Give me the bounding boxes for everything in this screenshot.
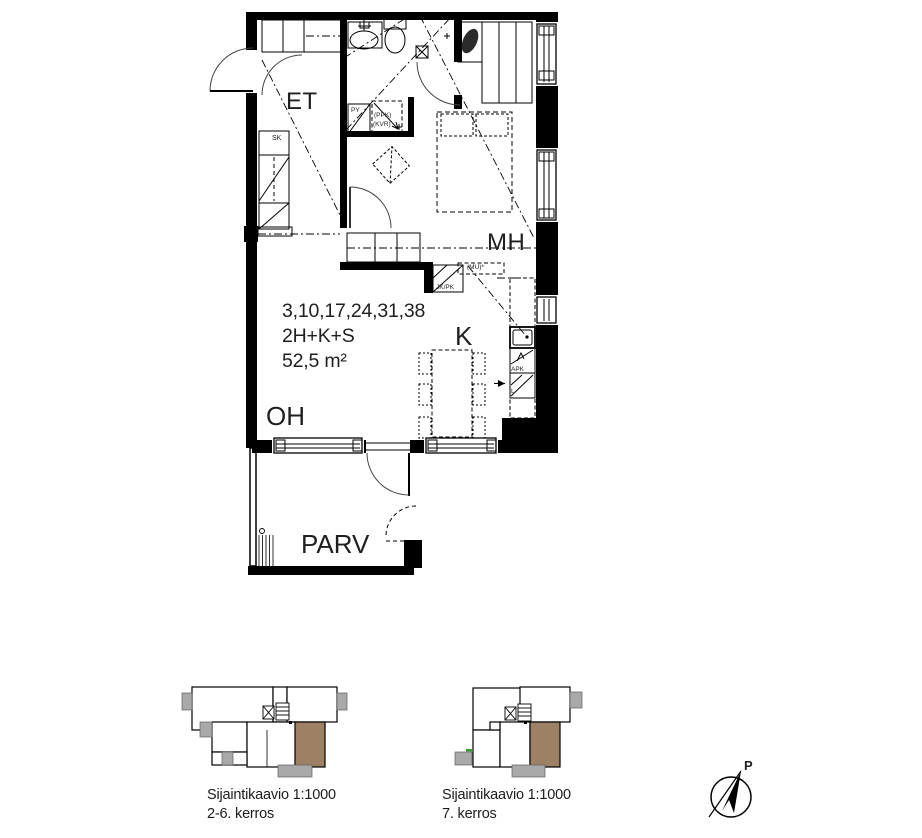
location-diagram-floors-2-6 [182,687,347,777]
diagram-2-floors: 7. kerros [442,805,571,824]
fixture-label-jkpk: JK/PK [436,284,454,291]
green-marker [466,749,472,752]
vent-lines [258,14,536,336]
fixture-label-mu: (MU)* [467,264,484,271]
room-label-hall: ET [286,88,318,116]
room-label-balcony: PARV [301,529,369,560]
chair [473,417,485,438]
north-label: P [744,758,753,773]
apartment-area: 52,5 m² [282,349,425,374]
fixture-label-l: L [511,388,515,395]
apartment-info: 3,10,17,24,31,38 2H+K+S 52,5 m² [282,299,425,374]
pillow [476,114,508,136]
diagram-2-title: Sijaintikaavio 1:1000 [442,786,571,805]
room-label-kitchen: K [455,321,472,352]
highlighted-apartment [295,722,325,767]
hall-closets [258,20,342,236]
fixture-label-kvr: (KVR) [373,121,391,128]
diagram-1-floors: 2-6. kerros [207,805,336,824]
windows-bottom-wall [272,436,498,455]
diagram-1-title: Sijaintikaavio 1:1000 [207,786,336,805]
apartment-numbers: 3,10,17,24,31,38 [282,299,425,324]
floorplan-page: ET MH K OH PARV 3,10,17,24,31,38 2H+K+S … [0,0,922,838]
dining-table [432,350,472,437]
floor-plan [210,12,559,575]
architectural-drawing [0,0,922,838]
fixture-label-apk: APK [511,366,524,373]
bathroom-fixtures [348,18,450,134]
pillow [441,114,473,136]
balcony-railing [250,448,256,566]
wardrobe [482,22,532,103]
fixture-label-sk: SK [272,135,281,142]
toilet-bowl [385,27,405,53]
compass [709,771,751,817]
bedroom-furniture [347,22,532,262]
dresser [347,233,420,262]
diagram-caption-1: Sijaintikaavio 1:1000 2-6. kerros [207,786,336,824]
fixture-label-ppk: (PPK) [374,112,391,119]
room-label-bedroom: MH [487,229,525,257]
diagram-caption-2: Sijaintikaavio 1:1000 7. kerros [442,786,571,824]
highlighted-apartment [530,722,560,767]
chair [419,384,431,405]
washbasin [350,31,378,49]
location-diagram-floor-7 [455,687,582,777]
double-bed [437,112,512,212]
apartment-type: 2H+K+S [282,324,425,349]
entrance-opening [244,50,258,93]
chair [473,384,485,405]
armchair [373,147,410,184]
room-label-living: OH [266,401,305,432]
fixture-label-py: PY [351,107,360,114]
chair [473,353,485,374]
chair [419,417,431,438]
